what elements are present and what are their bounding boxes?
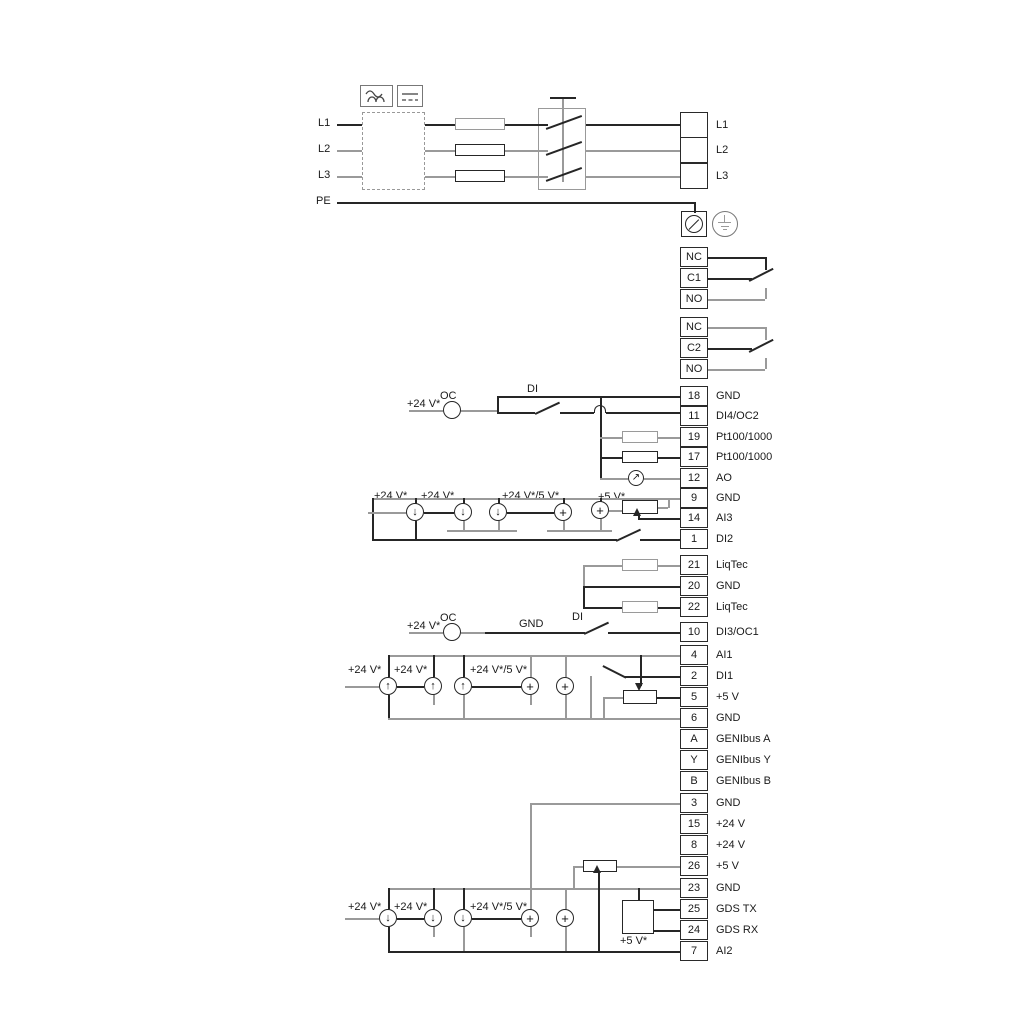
terminal-label: GDS RX [716,924,758,936]
wire-segment [547,530,612,532]
wire-segment [617,866,680,868]
terminal-label: GENIbus Y [716,754,771,766]
wire-segment [433,655,435,677]
terminal-cell: 4 [680,645,708,665]
terminal-label: GND [716,882,740,894]
wire-segment [658,565,680,567]
annotation-oc: OC [440,612,457,624]
terminal-cell: 22 [680,597,708,617]
earth-stem [724,215,725,222]
terminal-cell: 8 [680,835,708,855]
wire-segment [765,288,767,299]
voltage-source-icon: + [556,909,574,927]
wire-segment [345,686,379,688]
wire-segment [505,176,538,178]
current-source-up-icon: ↑ [454,677,472,695]
terminal-cell: 24 [680,920,708,940]
current-source-down-icon: ↓ [489,503,507,521]
resistor [622,559,658,571]
terminal-label: +24 V [716,818,745,830]
switch-blade [616,529,641,542]
wire-segment [586,124,680,126]
annotation-plus24or5: +24 V*/5 V* [470,901,527,913]
wire-segment [765,257,767,270]
wire-segment [654,909,680,911]
terminal-cell: 25 [680,899,708,919]
wire-segment [583,586,680,588]
earth-bar [718,222,731,223]
terminal-cell: A [680,729,708,749]
earth-bar [723,229,727,230]
switch-blade [603,665,627,678]
wire-segment [397,918,424,920]
wire-segment [538,124,548,126]
relay2-cell: C2 [680,338,708,358]
terminal-label: AI1 [716,649,733,661]
wire-segment [415,521,417,539]
wiring-diagram: L1 L2 L3 PE +24 V* OC DI +24 V* +24 V* +… [0,0,1024,1024]
terminal-cell: Y [680,750,708,770]
wire-segment [565,927,567,951]
wire-segment [498,521,500,530]
wire-segment [497,412,535,414]
terminal-cell: 11 [680,406,708,426]
relay1-cell: NO [680,289,708,309]
wire-segment [668,498,670,508]
fuse [455,170,505,182]
wire-segment [388,888,680,890]
mains-out-label: L3 [716,170,728,182]
wire-segment [598,872,600,951]
wire-segment [530,803,680,805]
terminal-cell: 23 [680,878,708,898]
annotation-plus5: +5 V* [620,935,647,947]
wire-segment [538,150,548,152]
wire-segment [472,686,521,688]
wire-segment [573,866,575,888]
wire-segment [765,358,767,369]
wire-segment [337,124,362,126]
wire-segment [497,396,680,398]
terminal-cell: 18 [680,386,708,406]
wire-segment [388,655,680,657]
ac-symbol-icon [360,85,393,107]
terminal-label: DI4/OC2 [716,410,759,422]
wire-segment [603,697,605,718]
wire-segment [640,655,642,686]
wire-segment [565,655,567,677]
annotation-plus24: +24 V* [374,490,407,502]
wire-segment [638,518,680,520]
terminal-label: GND [716,390,740,402]
terminal-label: GND [716,712,740,724]
wire-segment [372,539,617,541]
wire-segment [583,607,622,609]
wire-segment [657,697,680,699]
wire-segment [644,478,680,480]
phase-label-l2: L2 [318,143,330,155]
wire-segment [530,655,532,677]
wire-segment [388,655,390,677]
wire-segment [603,697,623,699]
wire-segment [600,519,602,530]
wiper-arrow [633,508,641,516]
wire-segment [485,632,585,634]
wire-segment [765,327,767,340]
terminal-label: Pt100/1000 [716,451,772,463]
wire-segment [530,888,532,909]
converter-box [362,112,425,190]
wire-segment [433,695,435,705]
terminal-label: +5 V [716,691,739,703]
wire-segment [640,539,680,541]
wire-segment [538,176,548,178]
wire-segment [586,176,680,178]
wire-segment [658,507,668,509]
terminal-label: LiqTec [716,601,748,613]
wire-segment [583,565,622,567]
wire-segment [606,412,680,414]
wire-segment [638,888,640,900]
terminal-label: DI3/OC1 [716,626,759,638]
terminal-label: GND [716,797,740,809]
terminal-cell: 20 [680,576,708,596]
relay2-cell: NC [680,317,708,337]
wire-segment [424,512,454,514]
switch-blade [535,402,560,415]
wire-segment [658,437,680,439]
wire-segment [583,586,585,607]
phase-label-pe: PE [316,195,331,207]
switch-blade [749,339,774,353]
current-source-down-icon: ↓ [454,503,472,521]
analog-out-meter-icon: ↗ [628,470,644,486]
wire-segment [583,565,585,586]
current-source-down-icon: ↓ [454,909,472,927]
annotation-plus24: +24 V* [348,901,381,913]
annotation-plus24: +24 V* [407,398,440,410]
mains-out-label: L2 [716,144,728,156]
terminal-cell: 6 [680,708,708,728]
terminal-cell: 15 [680,814,708,834]
wire-segment [658,607,680,609]
wire-segment [409,410,443,412]
wire-segment [608,632,680,634]
current-source-down-icon: ↓ [406,503,424,521]
mains-out-label: L1 [716,119,728,131]
wire-segment [708,278,752,280]
voltage-source-icon: + [521,677,539,695]
terminal-label: AI3 [716,512,733,524]
wire-segment [600,478,628,480]
annotation-plus24: +24 V* [421,490,454,502]
terminal-label: GND [716,492,740,504]
switch-blade [749,268,774,282]
wire-segment [694,202,696,213]
wire-segment [368,512,406,514]
wire-segment [463,695,465,718]
annotation-plus24: +24 V* [394,901,427,913]
wire-segment [433,927,435,937]
wire-segment [463,927,465,951]
wire-segment [409,632,443,634]
resistor [622,601,658,613]
phase-label-l3: L3 [318,169,330,181]
terminal-label: DI1 [716,670,733,682]
relay2-cell: NO [680,359,708,379]
annotation-plus24or5: +24 V*/5 V* [502,490,559,502]
wire-segment [497,396,499,413]
wire-segment [345,918,379,920]
wire-segment [530,803,532,888]
annotation-di: DI [527,383,538,395]
wire-segment [560,412,594,414]
wire-segment [463,655,465,677]
current-source-down-icon: ↓ [379,909,397,927]
terminal-label: +5 V [716,860,739,872]
open-collector-icon [443,401,461,419]
voltage-source-icon: + [556,677,574,695]
wire-segment [463,521,465,530]
wire-segment [337,150,362,152]
fuse [455,118,505,130]
wire-segment [461,410,497,412]
wire-segment [550,97,576,99]
wire-segment [625,676,680,678]
wire-segment [562,97,564,182]
terminal-cell: 21 [680,555,708,575]
dc-symbol-icon [397,85,423,107]
wire-segment [388,888,390,909]
annotation-plus24or5: +24 V*/5 V* [470,664,527,676]
wire-segment [565,695,567,718]
resistor [622,451,658,463]
terminal-cell: 7 [680,941,708,961]
terminal-cell: 3 [680,793,708,813]
wire-segment [708,327,765,329]
wire-segment [461,632,485,634]
terminal-label: GDS TX [716,903,757,915]
wire-segment [472,918,521,920]
wire-segment [388,927,390,951]
gds-module-box [622,900,654,934]
wire-segment [600,457,622,459]
mains-out-cell [680,112,708,138]
terminal-label: GND [716,580,740,592]
mains-out-cell [680,163,708,189]
voltage-source-icon: + [521,909,539,927]
wire-segment [530,695,532,705]
wire-segment [573,866,583,868]
wire-segment [447,530,517,532]
potentiometer [623,690,657,704]
wire-segment [590,676,592,718]
phase-label-l1: L1 [318,117,330,129]
wire-segment [507,512,554,514]
terminal-cell: 14 [680,508,708,528]
terminal-cell: 17 [680,447,708,467]
terminal-label: LiqTec [716,559,748,571]
terminal-cell: 10 [680,622,708,642]
wire-segment [425,176,455,178]
terminal-label: GENIbus B [716,775,771,787]
wire-segment [530,927,532,937]
annotation-plus24: +24 V* [394,664,427,676]
wire-segment [654,930,680,932]
current-source-up-icon: ↑ [379,677,397,695]
annotation-oc: OC [440,390,457,402]
earth-bar [721,226,729,227]
terminal-cell: 19 [680,427,708,447]
terminal-cell: B [680,771,708,791]
wire-segment [600,437,622,439]
wire-segment [425,124,455,126]
annotation-di: DI [572,611,583,623]
terminal-label: DI2 [716,533,733,545]
wire-segment [609,510,622,512]
open-collector-icon [443,623,461,641]
terminal-label: +24 V [716,839,745,851]
terminal-cell: 9 [680,488,708,508]
wire-segment [388,718,680,720]
wire-segment [397,686,424,688]
annotation-plus24: +24 V* [348,664,381,676]
relay1-cell: NC [680,247,708,267]
wire-segment [565,888,567,909]
wire-segment [505,150,538,152]
resistor [622,431,658,443]
terminal-cell: 26 [680,856,708,876]
wire-segment [388,695,390,718]
current-source-down-icon: ↓ [424,909,442,927]
current-source-up-icon: ↑ [424,677,442,695]
wire-segment [425,150,455,152]
terminal-label: AO [716,472,732,484]
wire-segment [658,457,680,459]
wire-segment [563,521,565,530]
terminal-cell: 5 [680,687,708,707]
wire-segment [708,348,752,350]
voltage-source-icon: + [554,503,572,521]
wire-segment [372,498,374,539]
voltage-source-icon: + [591,501,609,519]
annotation-plus24: +24 V* [407,620,440,632]
relay1-cell: C1 [680,268,708,288]
switch-blade [584,622,609,635]
terminal-label: AI2 [716,945,733,957]
wiper-arrow [593,865,601,873]
mains-out-cell [680,137,708,163]
terminal-cell: 1 [680,529,708,549]
terminal-label: GENIbus A [716,733,770,745]
wire-segment [463,888,465,909]
wire-segment [708,369,765,371]
wire-segment [586,150,680,152]
wire-segment [388,951,680,953]
terminal-label: Pt100/1000 [716,431,772,443]
wire-segment [337,202,694,204]
wire-segment [708,257,765,259]
wire-segment [337,176,362,178]
fuse [455,144,505,156]
wiper-arrow [635,683,643,691]
wire-segment [433,888,435,909]
terminal-cell: 2 [680,666,708,686]
wire-segment [708,299,765,301]
annotation-gnd: GND [519,618,543,630]
terminal-cell: 12 [680,468,708,488]
wire-segment [505,124,538,126]
